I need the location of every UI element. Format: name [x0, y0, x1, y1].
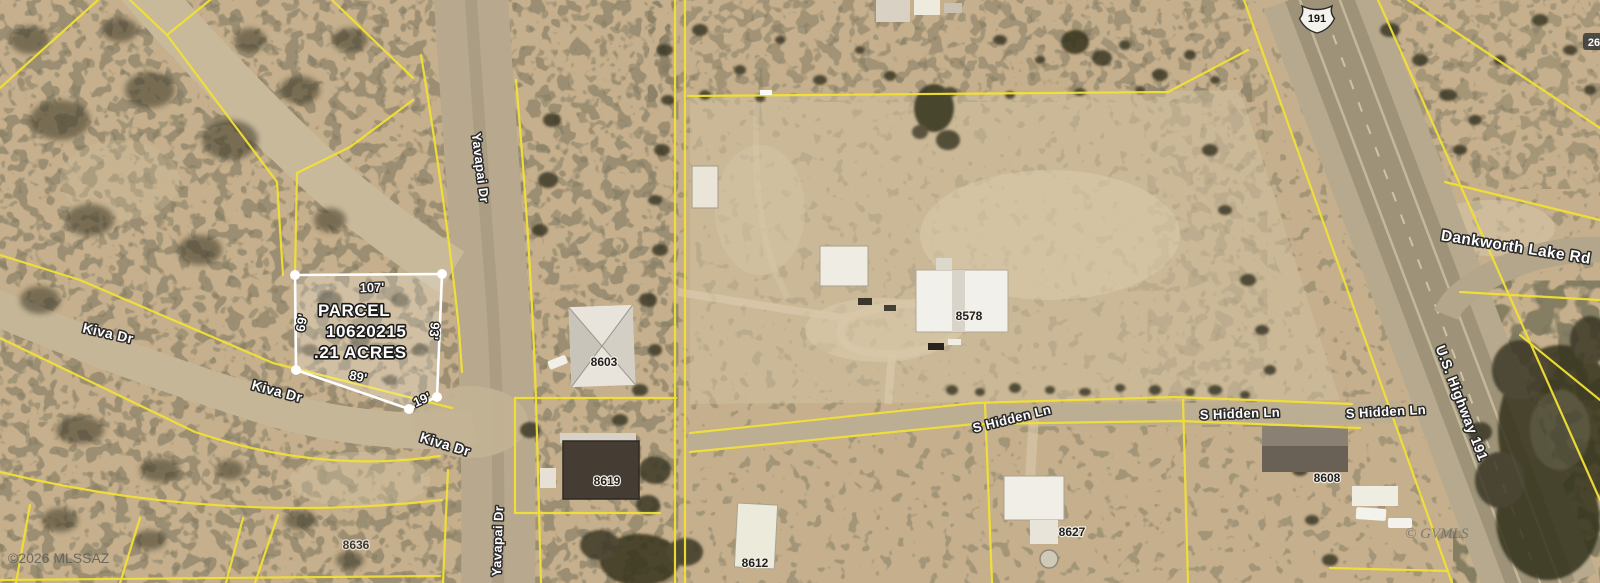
- truck-1: [1356, 507, 1387, 521]
- road-label-s-hidden-mid: S Hidden Ln: [1200, 405, 1281, 423]
- watermark-gvmls: © GVMLS: [1405, 526, 1469, 542]
- building-8627: [1004, 476, 1064, 520]
- vehicle-3: [928, 343, 944, 350]
- satellite-parcel-map[interactable]: 107' 69' 93' 89' 19' PARCEL 10620215 .21…: [0, 0, 1600, 583]
- building-top-1: [876, 0, 910, 22]
- building-8608-b: [1352, 486, 1398, 506]
- building-8578-small: [820, 246, 868, 286]
- parcel-dim-right: 93': [426, 322, 442, 341]
- building-8603: [569, 305, 636, 387]
- vehicle-2: [884, 305, 896, 311]
- house-number-8578: 8578: [956, 309, 983, 323]
- water-tank: [1040, 550, 1058, 568]
- road-label-yavapai-south: Yavapai Dr: [489, 505, 506, 576]
- building-shed: [692, 166, 718, 208]
- house-number-8627: 8627: [1059, 525, 1086, 539]
- building-top-3: [944, 3, 962, 13]
- house-number-edge-partial: 26: [1588, 37, 1600, 49]
- house-number-8608: 8608: [1314, 471, 1341, 485]
- watermark-mlssaz: ©2026 MLSSAZ: [8, 550, 110, 566]
- parcel-dim-left: 69': [293, 313, 311, 333]
- building-8619-carport: [540, 468, 556, 488]
- vehicle-4: [948, 339, 961, 345]
- parcel-label-number: 10620215: [326, 322, 406, 341]
- house-number-edge: 26: [1583, 33, 1600, 50]
- map-canvas[interactable]: 107' 69' 93' 89' 19' PARCEL 10620215 .21…: [0, 0, 1600, 583]
- parcel-label-title: PARCEL: [318, 301, 390, 320]
- house-number-8612: 8612: [742, 556, 769, 570]
- building-8619: [563, 441, 639, 499]
- building-top-2: [914, 0, 940, 15]
- house-number-8636: 8636: [343, 538, 370, 552]
- highway-shield-number: 191: [1308, 13, 1326, 25]
- vehicle-1: [858, 298, 872, 305]
- house-number-8619: 8619: [594, 474, 621, 488]
- parcel-label-acreage: .21 ACRES: [314, 343, 407, 362]
- parcel-dim-top: 107': [359, 280, 384, 296]
- gate-mark: [760, 90, 772, 95]
- building-8627-b: [1030, 520, 1058, 544]
- house-number-8603: 8603: [591, 355, 618, 369]
